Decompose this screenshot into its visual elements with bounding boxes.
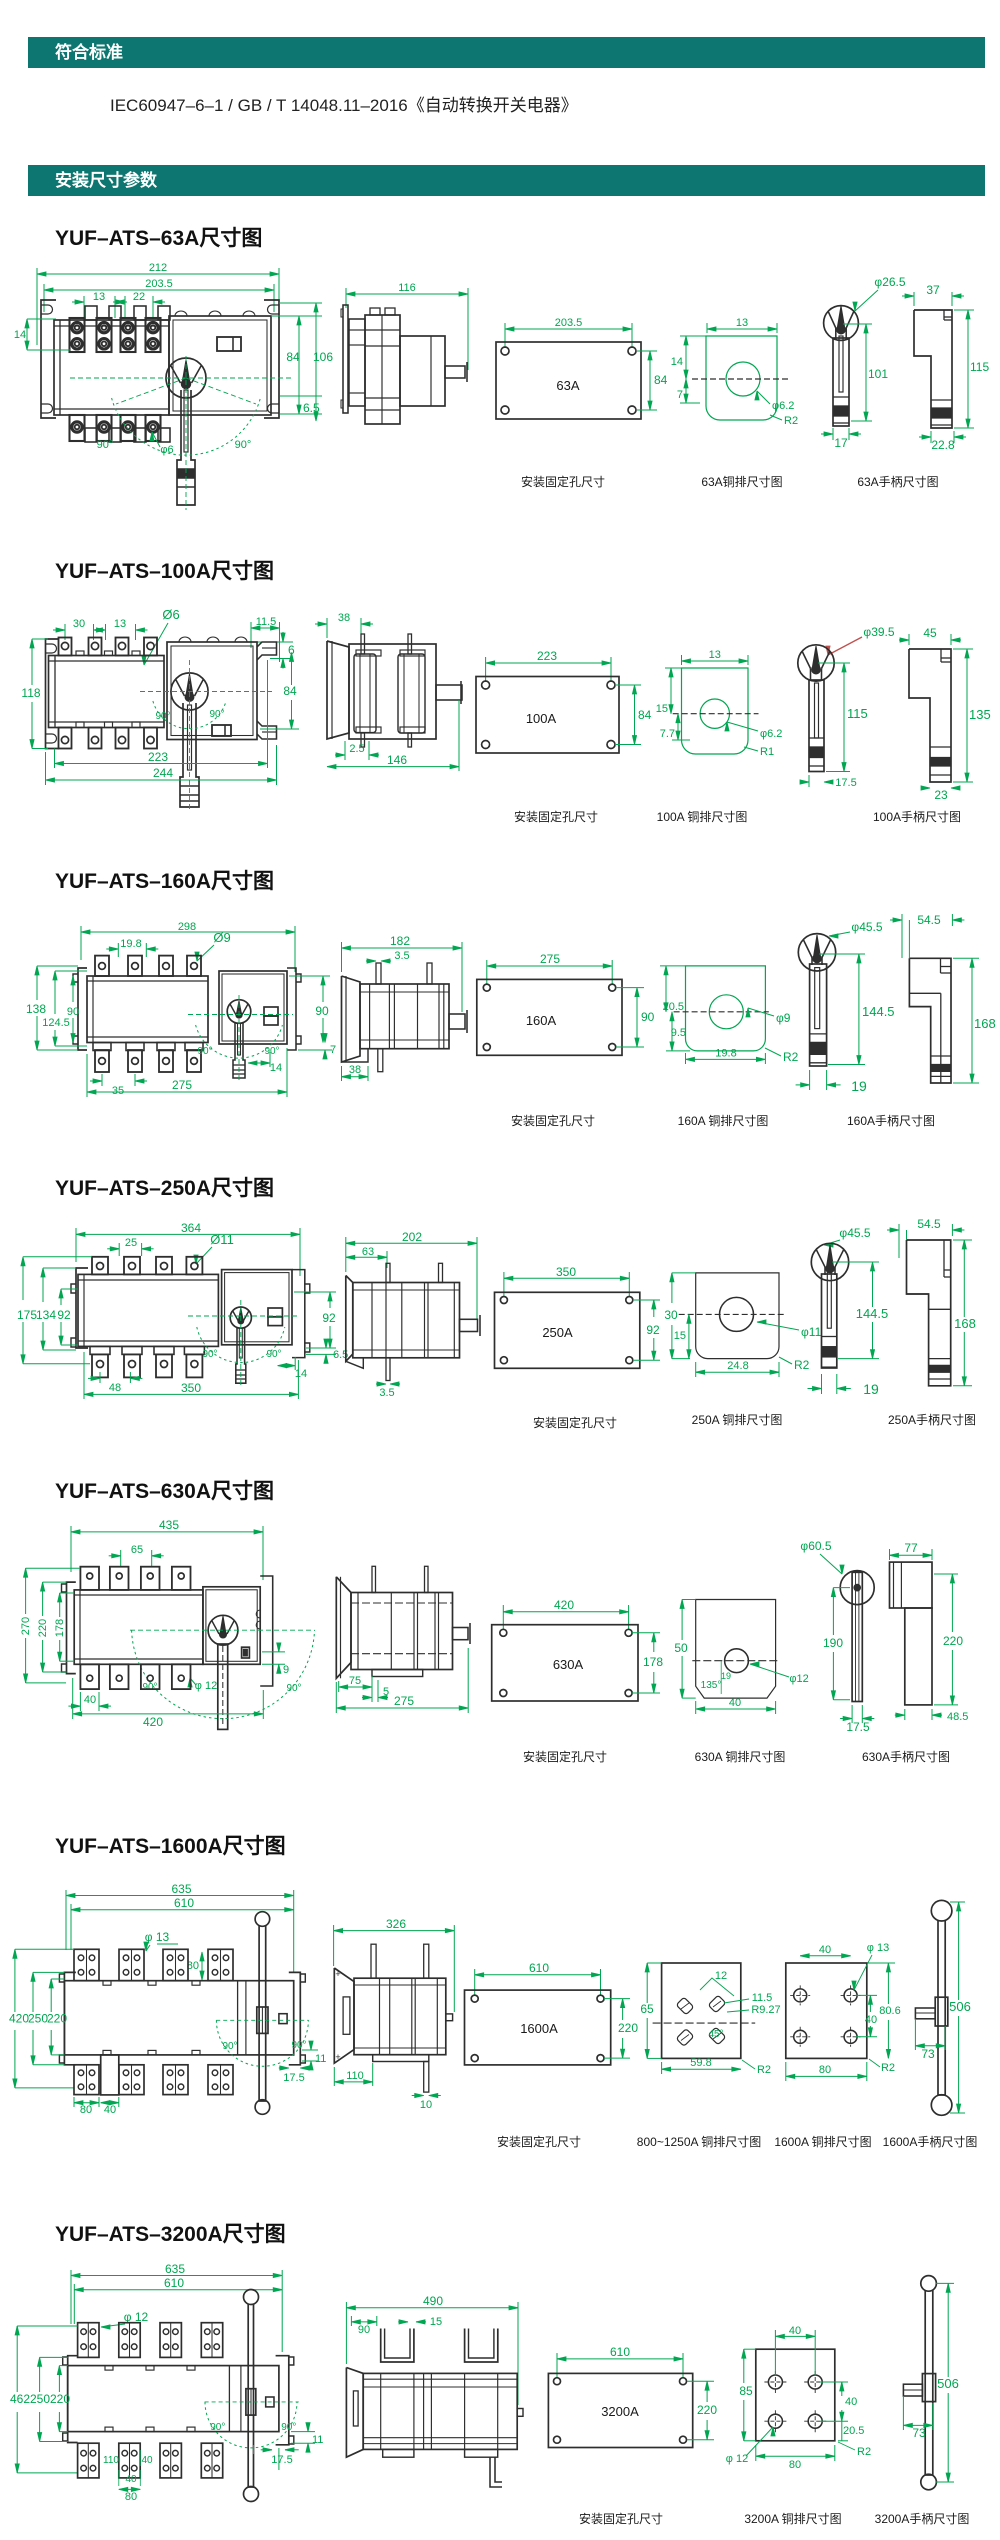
svg-text:14: 14 — [295, 1368, 307, 1380]
svg-text:90°: 90° — [197, 1046, 212, 1057]
svg-text:20.5: 20.5 — [663, 1001, 684, 1013]
svg-text:610: 610 — [174, 1896, 194, 1910]
svg-text:R2: R2 — [794, 1358, 810, 1372]
svg-text:80.6: 80.6 — [879, 2005, 900, 2017]
svg-text:30: 30 — [73, 618, 85, 630]
svg-text:17.5: 17.5 — [283, 2072, 304, 2084]
svg-text:+: + — [335, 1969, 340, 1979]
svg-text:R9.27: R9.27 — [751, 2004, 780, 2016]
svg-text:17.5: 17.5 — [271, 2454, 292, 2466]
svg-text:100A手柄尺寸图: 100A手柄尺寸图 — [873, 810, 961, 824]
svg-text:134: 134 — [36, 1308, 56, 1322]
svg-text:350: 350 — [556, 1265, 576, 1279]
svg-text:202: 202 — [402, 1230, 422, 1244]
svg-text:40: 40 — [789, 2325, 801, 2337]
svg-text:R1: R1 — [760, 746, 774, 758]
svg-text:635: 635 — [165, 2262, 185, 2276]
svg-text:63A: 63A — [556, 378, 579, 393]
svg-text:50: 50 — [674, 1641, 688, 1655]
svg-text:90: 90 — [641, 1010, 655, 1024]
svg-text:144.5: 144.5 — [856, 1306, 889, 1321]
svg-text:40: 40 — [865, 2014, 877, 2026]
svg-text:35: 35 — [112, 1085, 124, 1097]
svg-text:146: 146 — [387, 753, 407, 767]
svg-text:24.8: 24.8 — [727, 1360, 748, 1372]
svg-text:178: 178 — [54, 1619, 66, 1637]
svg-text:7.7: 7.7 — [660, 728, 675, 740]
svg-text:5: 5 — [383, 1686, 389, 1698]
svg-text:11.5: 11.5 — [256, 616, 277, 628]
svg-text:90°: 90° — [142, 1682, 157, 1693]
svg-text:13: 13 — [736, 317, 748, 329]
svg-text:9.5: 9.5 — [671, 1027, 686, 1039]
svg-text:19: 19 — [851, 1078, 867, 1094]
svg-text:45°: 45° — [708, 2029, 723, 2040]
svg-text:203.5: 203.5 — [145, 278, 173, 290]
svg-text:φ11: φ11 — [801, 1325, 822, 1339]
svg-text:90°: 90° — [209, 709, 224, 720]
svg-text:13: 13 — [93, 291, 105, 303]
svg-text:安装固定孔尺寸: 安装固定孔尺寸 — [521, 474, 605, 489]
svg-text:250: 250 — [30, 2392, 50, 2406]
svg-text:90°: 90° — [291, 2040, 306, 2051]
svg-text:110: 110 — [346, 2070, 364, 2082]
svg-text:φ6.2: φ6.2 — [760, 728, 782, 740]
svg-text:R2: R2 — [857, 2446, 871, 2458]
svg-text:19.8: 19.8 — [715, 1048, 736, 1060]
svg-text:168: 168 — [954, 1316, 976, 1331]
svg-text:462: 462 — [10, 2392, 30, 2406]
svg-text:38: 38 — [338, 612, 350, 624]
svg-text:90°: 90° — [155, 711, 170, 722]
svg-text:610: 610 — [164, 2276, 184, 2290]
svg-text:420: 420 — [554, 1598, 574, 1612]
svg-text:160A 铜排尺寸图: 160A 铜排尺寸图 — [678, 1113, 769, 1128]
svg-text:90°: 90° — [202, 1349, 217, 1360]
svg-text:138: 138 — [26, 1002, 46, 1016]
svg-text:85: 85 — [739, 2384, 753, 2398]
svg-text:17: 17 — [834, 436, 848, 450]
svg-text:φ39.5: φ39.5 — [863, 625, 894, 639]
svg-text:220: 220 — [50, 2392, 70, 2406]
svg-text:40: 40 — [819, 1944, 831, 1956]
svg-text:92: 92 — [322, 1311, 336, 1325]
svg-text:13: 13 — [709, 649, 721, 661]
svg-text:φ9: φ9 — [776, 1011, 791, 1025]
svg-text:23: 23 — [934, 788, 948, 802]
svg-text:90: 90 — [358, 2324, 370, 2336]
svg-text:275: 275 — [172, 1078, 192, 1092]
svg-text:90°: 90° — [266, 1349, 281, 1360]
svg-text:φ 13: φ 13 — [867, 1942, 889, 1954]
svg-text:115: 115 — [847, 706, 868, 721]
svg-text:168: 168 — [974, 1016, 996, 1031]
svg-text:R2: R2 — [757, 2064, 771, 2076]
svg-text:14: 14 — [671, 356, 683, 368]
svg-text:244: 244 — [153, 766, 173, 780]
svg-text:84: 84 — [638, 708, 652, 722]
svg-text:435: 435 — [159, 1518, 179, 1532]
svg-text:270: 270 — [20, 1617, 32, 1635]
svg-text:10: 10 — [420, 2099, 432, 2111]
svg-text:160A手柄尺寸图: 160A手柄尺寸图 — [847, 1114, 935, 1128]
svg-text:610: 610 — [529, 1961, 549, 1975]
svg-text:65: 65 — [131, 1544, 143, 1556]
svg-text:220: 220 — [47, 2012, 67, 2026]
svg-text:135°: 135° — [701, 1680, 722, 1691]
svg-text:R2: R2 — [783, 1050, 799, 1064]
svg-text:48: 48 — [109, 1382, 121, 1394]
svg-text:13: 13 — [114, 618, 126, 630]
svg-text:25: 25 — [125, 1237, 137, 1249]
svg-text:φ6.2: φ6.2 — [772, 400, 794, 412]
svg-text:223: 223 — [148, 750, 168, 764]
svg-text:73: 73 — [912, 2426, 926, 2440]
svg-text:275: 275 — [540, 952, 560, 966]
svg-text:92: 92 — [646, 1323, 660, 1337]
svg-text:65: 65 — [640, 2002, 654, 2016]
svg-text:90°: 90° — [286, 1683, 301, 1694]
svg-text:100A: 100A — [526, 711, 557, 726]
svg-text:175: 175 — [17, 1308, 37, 1322]
svg-text:144.5: 144.5 — [862, 1004, 895, 1019]
svg-text:116: 116 — [398, 282, 416, 294]
svg-text:11.5: 11.5 — [752, 1992, 773, 2004]
svg-text:250A: 250A — [542, 1325, 573, 1340]
svg-text:635: 635 — [171, 1882, 191, 1896]
svg-text:3200A: 3200A — [601, 2404, 639, 2419]
svg-text:250: 250 — [28, 2012, 48, 2026]
svg-text:17.5: 17.5 — [846, 1720, 870, 1734]
svg-text:250A 铜排尺寸图: 250A 铜排尺寸图 — [692, 1412, 783, 1427]
svg-text:75: 75 — [349, 1675, 361, 1687]
svg-text:178: 178 — [643, 1655, 663, 1669]
svg-text:203.5: 203.5 — [555, 317, 583, 329]
svg-text:11: 11 — [315, 2053, 326, 2065]
svg-text:11: 11 — [312, 2434, 323, 2446]
svg-text:22: 22 — [133, 291, 145, 303]
svg-text:安装固定孔尺寸: 安装固定孔尺寸 — [514, 809, 598, 824]
svg-text:3200A手柄尺寸图: 3200A手柄尺寸图 — [875, 2512, 970, 2526]
svg-text:630A 铜排尺寸图: 630A 铜排尺寸图 — [695, 1749, 786, 1764]
svg-text:φ45.5: φ45.5 — [839, 1226, 870, 1240]
svg-text:106: 106 — [313, 350, 333, 364]
svg-text:安装固定孔尺寸: 安装固定孔尺寸 — [523, 1749, 607, 1764]
svg-text:38: 38 — [349, 1064, 361, 1076]
svg-text:90°: 90° — [210, 2422, 225, 2433]
svg-text:250A手柄尺寸图: 250A手柄尺寸图 — [888, 1413, 976, 1427]
svg-text:420: 420 — [9, 2012, 29, 2026]
svg-text:135: 135 — [969, 707, 991, 722]
svg-text:275: 275 — [394, 1694, 414, 1708]
svg-text:80: 80 — [819, 2064, 831, 2076]
svg-text:40: 40 — [141, 2455, 153, 2466]
svg-text:40: 40 — [729, 1697, 741, 1709]
svg-text:Ø9: Ø9 — [213, 930, 230, 945]
svg-text:14: 14 — [14, 329, 26, 341]
svg-text:90°: 90° — [264, 1046, 279, 1057]
svg-text:22.8: 22.8 — [931, 438, 955, 452]
svg-text:610: 610 — [610, 2345, 630, 2359]
svg-text:506: 506 — [937, 2376, 959, 2391]
svg-text:124.5: 124.5 — [42, 1017, 70, 1029]
svg-text:φ6: φ6 — [160, 444, 173, 456]
svg-text:15: 15 — [656, 703, 668, 715]
svg-text:48.5: 48.5 — [947, 1711, 968, 1723]
svg-text:84: 84 — [286, 350, 300, 364]
svg-text:φ 12: φ 12 — [195, 1680, 217, 1692]
svg-text:Ø6: Ø6 — [162, 607, 179, 622]
svg-text:φ26.5: φ26.5 — [874, 275, 905, 289]
svg-text:223: 223 — [537, 649, 557, 663]
svg-text:3.5: 3.5 — [394, 950, 409, 962]
svg-text:630A: 630A — [553, 1657, 584, 1672]
svg-text:φ60.5: φ60.5 — [800, 1539, 831, 1553]
svg-text:800~1250A 铜排尺寸图: 800~1250A 铜排尺寸图 — [637, 2134, 761, 2149]
svg-text:φ 12: φ 12 — [726, 2453, 748, 2465]
svg-text:1600A: 1600A — [520, 2021, 558, 2036]
svg-text:80: 80 — [789, 2459, 801, 2471]
svg-text:安装固定孔尺寸: 安装固定孔尺寸 — [579, 2511, 663, 2526]
svg-text:80: 80 — [125, 2491, 137, 2503]
svg-text:19: 19 — [863, 1381, 879, 1397]
svg-text:59.8: 59.8 — [690, 2057, 711, 2069]
svg-text:安装固定孔尺寸: 安装固定孔尺寸 — [511, 1113, 595, 1128]
svg-text:安装固定孔尺寸: 安装固定孔尺寸 — [497, 2134, 581, 2149]
svg-text:R2: R2 — [881, 2062, 895, 2074]
svg-text:63: 63 — [362, 1246, 374, 1258]
svg-text:14: 14 — [270, 1062, 282, 1074]
svg-text:350: 350 — [181, 1381, 201, 1395]
svg-text:101: 101 — [868, 367, 888, 381]
svg-text:45: 45 — [923, 626, 937, 640]
svg-text:630A手柄尺寸图: 630A手柄尺寸图 — [862, 1750, 950, 1764]
svg-text:90°: 90° — [222, 2041, 237, 2052]
svg-text:220: 220 — [37, 1619, 49, 1637]
svg-text:326: 326 — [386, 1917, 406, 1931]
svg-text:506: 506 — [949, 1999, 971, 2014]
svg-text:40: 40 — [104, 2104, 116, 2116]
svg-text:90: 90 — [67, 1006, 79, 1018]
svg-text:182: 182 — [390, 934, 410, 948]
svg-text:15: 15 — [674, 1330, 686, 1342]
svg-text:220: 220 — [943, 1634, 963, 1648]
svg-text:40: 40 — [125, 2474, 137, 2485]
svg-text:54.5: 54.5 — [917, 1217, 941, 1231]
svg-text:7: 7 — [677, 389, 683, 401]
svg-text:92: 92 — [57, 1308, 71, 1322]
svg-text:110: 110 — [103, 2455, 119, 2466]
svg-text:90°: 90° — [97, 439, 114, 451]
svg-text:364: 364 — [181, 1221, 201, 1235]
svg-text:54.5: 54.5 — [917, 913, 941, 927]
svg-text:90: 90 — [315, 1004, 329, 1018]
svg-text:20.5: 20.5 — [843, 2425, 864, 2437]
svg-text:1600A手柄尺寸图: 1600A手柄尺寸图 — [883, 2135, 978, 2149]
svg-text:190: 190 — [823, 1636, 843, 1650]
svg-text:100A 铜排尺寸图: 100A 铜排尺寸图 — [657, 809, 748, 824]
svg-text:3.5: 3.5 — [379, 1387, 394, 1399]
svg-text:3200A 铜排尺寸图: 3200A 铜排尺寸图 — [744, 2511, 841, 2526]
svg-text:1600A 铜排尺寸图: 1600A 铜排尺寸图 — [774, 2134, 871, 2149]
svg-text:490: 490 — [423, 2294, 443, 2308]
svg-text:90°: 90° — [235, 439, 252, 451]
svg-text:19.8: 19.8 — [120, 938, 141, 950]
svg-text:220: 220 — [697, 2403, 717, 2417]
svg-text:420: 420 — [143, 1715, 163, 1729]
svg-text:63A铜排尺寸图: 63A铜排尺寸图 — [701, 474, 782, 489]
svg-text:17.5: 17.5 — [835, 777, 856, 789]
svg-text:84: 84 — [283, 684, 297, 698]
svg-text:160A: 160A — [526, 1013, 557, 1028]
svg-text:+: + — [335, 2052, 340, 2062]
svg-text:安装固定孔尺寸: 安装固定孔尺寸 — [533, 1415, 617, 1430]
svg-text:15: 15 — [430, 2316, 442, 2328]
svg-text:115: 115 — [970, 360, 989, 374]
svg-text:12: 12 — [715, 1970, 727, 1982]
svg-text:73: 73 — [921, 2047, 935, 2061]
svg-text:9: 9 — [283, 1664, 289, 1676]
svg-text:212: 212 — [149, 262, 167, 274]
svg-text:77: 77 — [904, 1541, 918, 1555]
svg-text:80: 80 — [80, 2104, 92, 2116]
svg-text:R2: R2 — [784, 415, 798, 427]
svg-text:Ø11: Ø11 — [210, 1232, 234, 1247]
svg-text:84: 84 — [654, 373, 668, 387]
svg-text:2.5: 2.5 — [349, 743, 364, 755]
svg-text:40: 40 — [84, 1694, 96, 1706]
svg-text:63A手柄尺寸图: 63A手柄尺寸图 — [857, 475, 938, 489]
svg-text:40: 40 — [845, 2396, 857, 2408]
svg-text:220: 220 — [618, 2021, 638, 2035]
svg-text:37: 37 — [926, 283, 940, 297]
svg-text:φ12: φ12 — [789, 1673, 808, 1685]
svg-text:30: 30 — [664, 1308, 678, 1322]
svg-text:298: 298 — [178, 921, 196, 933]
svg-text:19: 19 — [721, 1671, 731, 1681]
svg-text:6.5: 6.5 — [303, 401, 320, 415]
svg-text:118: 118 — [21, 686, 40, 700]
svg-text:φ45.5: φ45.5 — [851, 920, 882, 934]
